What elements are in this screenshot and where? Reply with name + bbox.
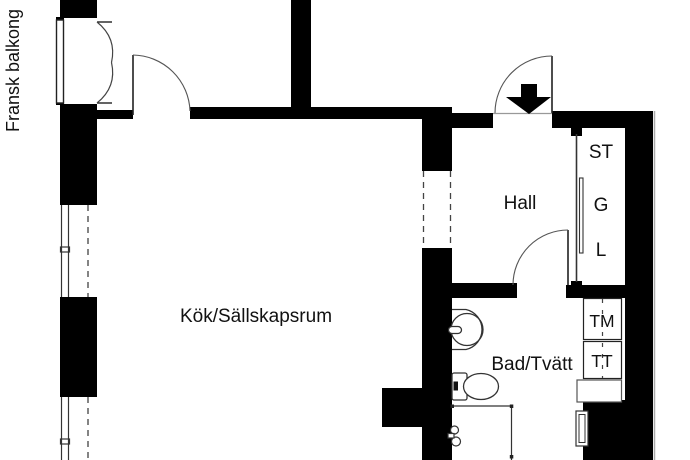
wall-kitchen-bump [382, 388, 422, 427]
mixer-knob-top [451, 426, 459, 434]
french-door-arc-top [97, 22, 113, 63]
label-bath-laundry: Bad/Tvätt [491, 354, 573, 375]
closet-sliding-door [580, 178, 584, 253]
bench-box [577, 380, 622, 402]
label-closet-st: ST [589, 142, 614, 163]
wall-hall-top-right [552, 111, 653, 128]
label-french-balcony: Fransk balkong [3, 9, 23, 132]
interior-door-top [133, 55, 190, 115]
french-balcony [57, 20, 113, 103]
wall-bottom-right-block [583, 400, 653, 460]
shower-corner-dot-1 [451, 405, 455, 409]
kitchen-hall-opening [424, 171, 451, 248]
wall-left-top [60, 0, 97, 18]
label-tumble-dryer: TT [591, 351, 613, 371]
shaft-frame [576, 411, 588, 446]
closet-fronts [577, 134, 584, 282]
label-closet-g: G [594, 195, 609, 216]
wall-upper-vertical [291, 0, 311, 110]
wall-left-mid [60, 104, 97, 205]
french-door-arc-bottom [97, 63, 113, 104]
entrance-arrow-icon [506, 84, 551, 114]
bath-door-arc [513, 230, 568, 285]
shower-corner-dot-3 [510, 455, 514, 459]
wall-closet-stub-bottom [571, 281, 582, 289]
wall-top-left-bar [97, 110, 133, 119]
interior-door-arc [133, 55, 190, 111]
toilet-bowl [464, 374, 499, 400]
wall-hall-top-left [452, 113, 493, 128]
wall-left-lower [60, 297, 97, 397]
sink-tap [449, 327, 462, 334]
window-upper [61, 205, 89, 297]
shower-outline [452, 406, 512, 460]
shower-corner-dot-2 [510, 405, 514, 409]
label-washing-machine: TM [589, 311, 614, 331]
floor-plan-page: Fransk balkong Kök/Sällskapsrum Hall Bad… [0, 0, 690, 460]
window-lower [61, 397, 89, 460]
toilet-fixture [452, 373, 499, 400]
sink-fixture [449, 310, 484, 350]
shaft-frame-outer [576, 411, 588, 446]
wall-divider-lower [422, 248, 452, 460]
wall-kitchen-north [190, 107, 452, 119]
shower-fixture [448, 405, 513, 460]
bath-door [513, 230, 568, 285]
label-closet-l: L [596, 240, 607, 261]
label-kitchen-living: Kök/Sällskapsrum [180, 306, 332, 327]
wall-hall-bath-left [452, 283, 517, 298]
wall-divider-junction [422, 107, 452, 171]
label-hall: Hall [504, 193, 537, 214]
floor-plan: Fransk balkong Kök/Sällskapsrum Hall Bad… [0, 0, 690, 460]
balcony-railing [57, 20, 64, 103]
mixer-base [448, 434, 454, 439]
toilet-flush-button [454, 382, 459, 391]
